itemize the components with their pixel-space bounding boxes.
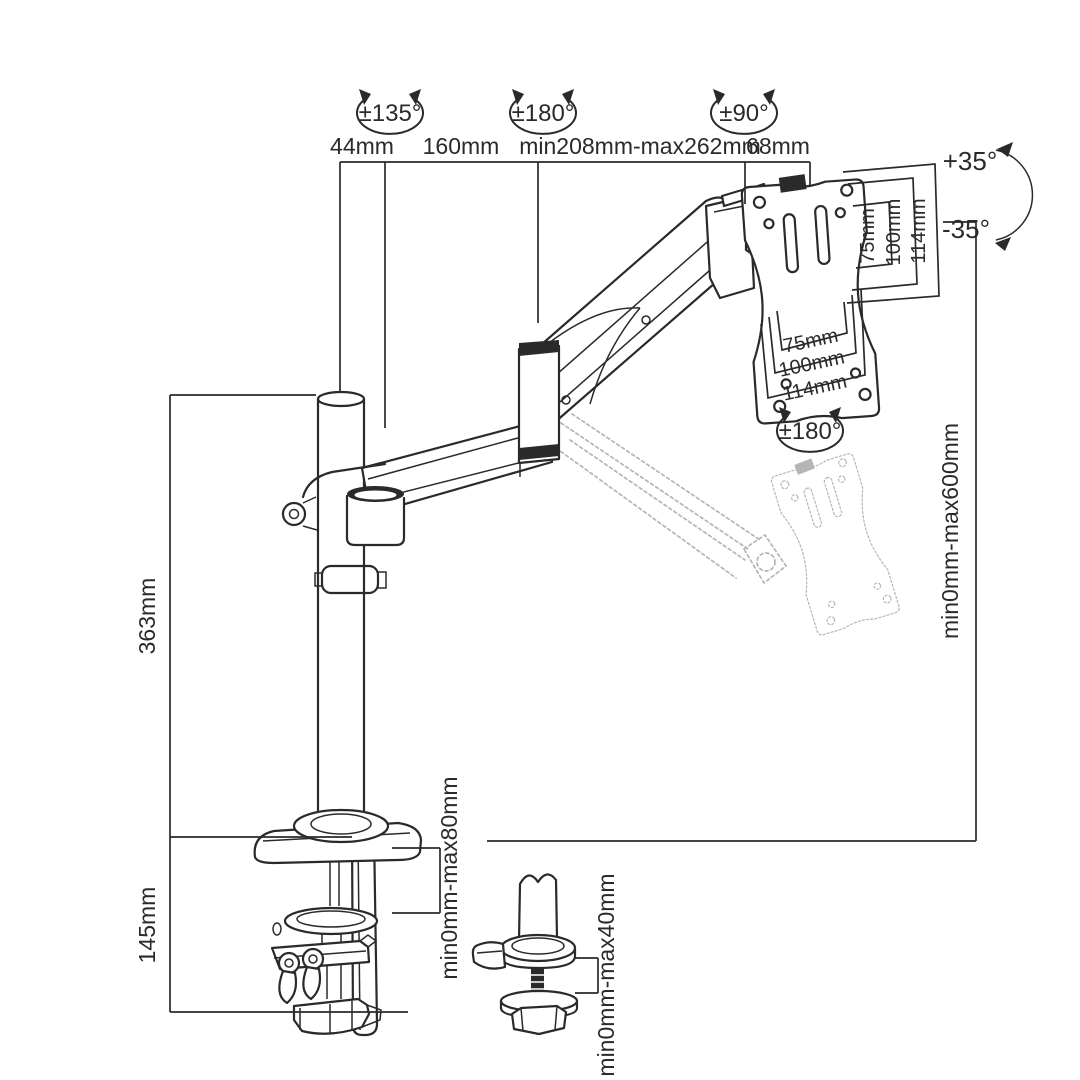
- dim-pole-offset: 44mm: [330, 133, 394, 159]
- dim-arm-front: 160mm: [423, 133, 500, 159]
- vesa-right-114: 114mm: [908, 198, 930, 263]
- tilt-arc-icon: [996, 150, 1032, 240]
- dim-arm-gas: min208mm-max262mm: [519, 133, 761, 159]
- grommet-mount: [473, 874, 577, 1034]
- elbow-rotation-label: ±180°: [512, 100, 575, 127]
- pole: [318, 392, 364, 822]
- cable-clip: [315, 566, 386, 593]
- grommet-pole-stub: [519, 874, 557, 940]
- grommet-wing-plate: [473, 942, 505, 968]
- clamp-knob: [294, 999, 369, 1034]
- dim-pole-height: 363mm: [134, 578, 160, 655]
- ghost-arm-lowered: [556, 414, 900, 636]
- diagram-canvas: ±135° ±180° ±90° ±180° +35° -35° 44mm 16…: [0, 0, 1080, 1080]
- tilt-up-label: +35°: [943, 146, 998, 176]
- vesa-rotation-label: ±180°: [779, 418, 842, 445]
- dim-clamp-range: min0mm-max80mm: [436, 776, 462, 979]
- elbow-joint: [519, 340, 559, 463]
- ghost-vesa-plate: [768, 447, 900, 637]
- dim-grommet-range: min0mm-max40mm: [593, 873, 619, 1076]
- dim-clamp-height: 145mm: [134, 887, 160, 964]
- monitor-arm-diagram: ±135° ±180° ±90° ±180° +35° -35° 44mm 16…: [0, 0, 1080, 1080]
- vesa-right-75: 75mm: [857, 208, 879, 264]
- pole-rotation-label: ±135°: [359, 100, 422, 127]
- head-rotation-label: ±90°: [719, 100, 768, 127]
- vesa-right-100: 100mm: [883, 199, 905, 266]
- desk-clamp: [255, 810, 421, 1035]
- tilt-down-label: -35°: [942, 214, 990, 244]
- dim-height-range: min0mm-max600mm: [937, 423, 963, 639]
- grommet-nut: [512, 1006, 566, 1034]
- dim-head: 68mm: [746, 133, 810, 159]
- side-screw-knob: [283, 503, 305, 525]
